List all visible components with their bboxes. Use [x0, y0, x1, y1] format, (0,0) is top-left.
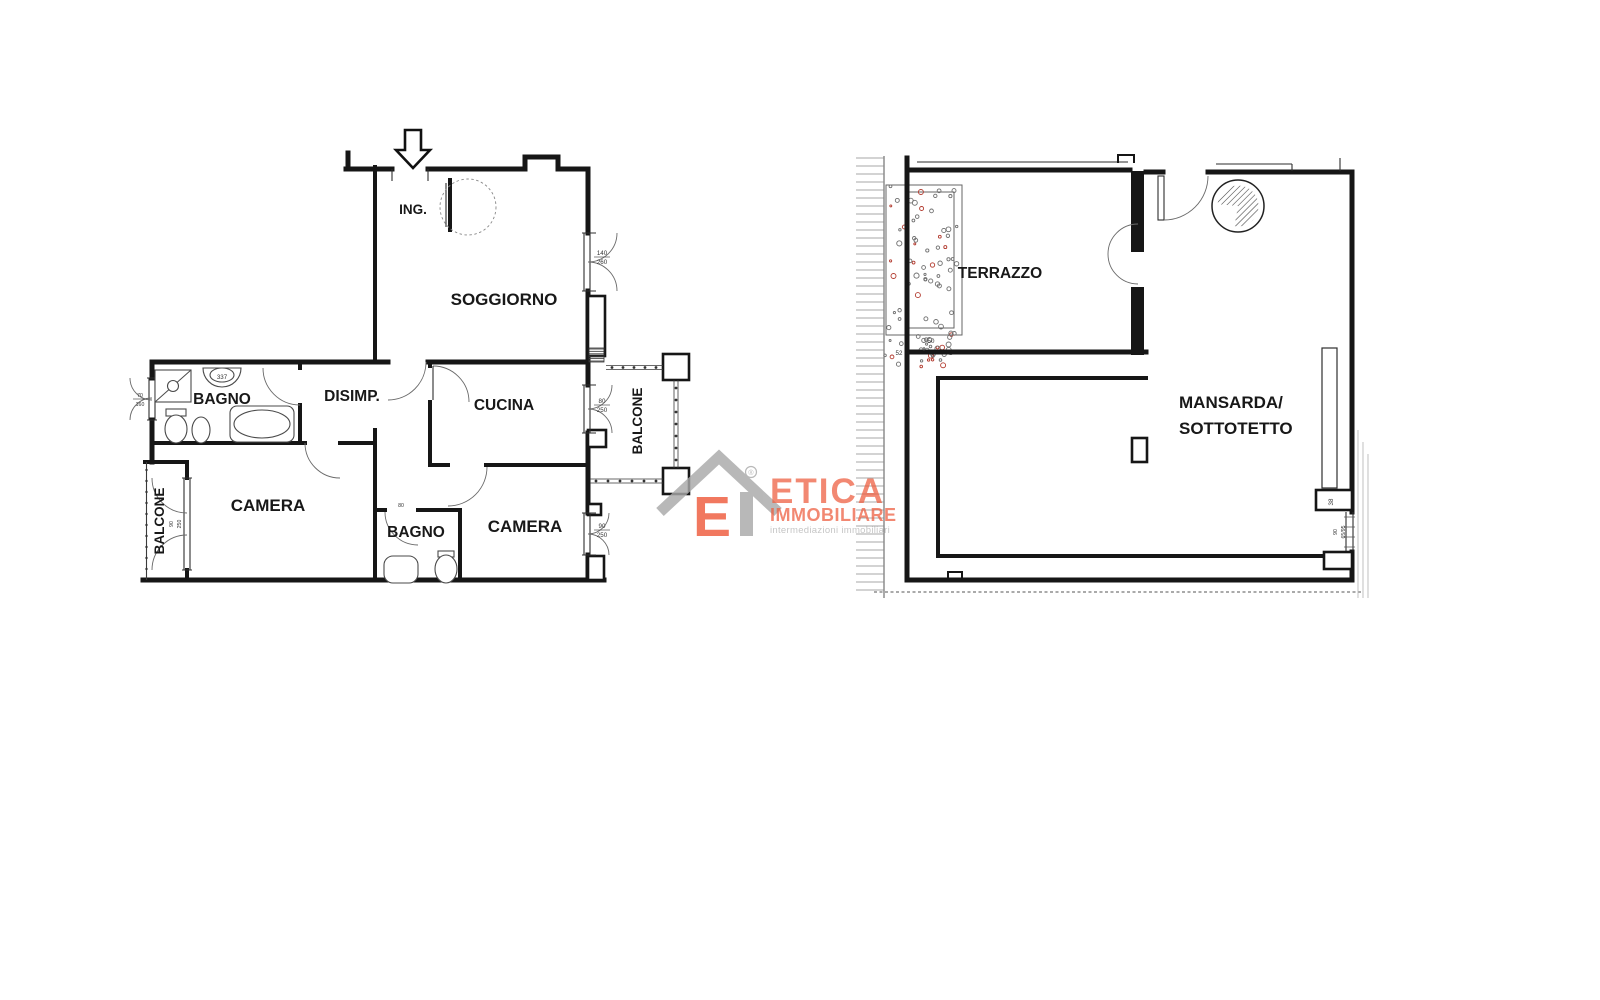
brand-suffix: IMMOBILIARE — [770, 505, 897, 525]
floor-plan-page: ING. SOGGIORNO BAGNO DISIMP. CUCINA CAME… — [0, 0, 1600, 1000]
balcony-left — [145, 462, 147, 580]
room-label-mansarda-2: SOTTOTETTO — [1179, 419, 1293, 438]
svg-text:70: 70 — [137, 393, 143, 399]
window-dim-cucina: 80 250 — [594, 398, 610, 414]
svg-text:E: E — [693, 485, 731, 549]
dim-niche: 38 — [1328, 498, 1335, 505]
left-floor-plan: ING. SOGGIORNO BAGNO DISIMP. CUCINA CAME… — [130, 130, 689, 583]
svg-text:65/95: 65/95 — [1341, 525, 1347, 538]
svg-text:250: 250 — [597, 532, 608, 539]
window-dim-bagno: 70 160 — [133, 393, 147, 408]
room-label-camera-right: CAMERA — [488, 517, 563, 536]
door-dim-bagno-bottom: 80 — [398, 503, 404, 509]
svg-text:90: 90 — [599, 523, 606, 530]
svg-text:260: 260 — [597, 259, 608, 266]
window-dim-camera-left: 90 250 — [169, 520, 183, 529]
dim-planter-width: 52 — [896, 350, 903, 357]
walls-right — [874, 155, 1362, 592]
registered-mark: ® — [748, 469, 754, 477]
svg-text:250: 250 — [177, 520, 183, 529]
bidet-icon — [192, 417, 210, 443]
entrance-arrow-icon — [396, 130, 430, 168]
chimney-flue-icon — [1212, 180, 1264, 232]
toilet-icon — [165, 409, 187, 443]
room-label-balcone-left: BALCONE — [152, 488, 167, 555]
sink-model-label: 337 — [217, 374, 228, 381]
dim-planter-gap: 8 — [923, 347, 926, 353]
room-label-ing: ING. — [399, 202, 427, 217]
room-label-camera-left: CAMERA — [231, 496, 306, 515]
attic-pillar — [1132, 438, 1147, 462]
room-label-bagno-bottom: BAGNO — [387, 524, 445, 541]
toilet-icon — [435, 551, 457, 583]
right-wall-details — [1316, 348, 1368, 598]
room-label-soggiorno: SOGGIORNO — [451, 290, 558, 309]
room-label-disimp: DISIMP. — [324, 388, 380, 405]
floor-plan-canvas: ING. SOGGIORNO BAGNO DISIMP. CUCINA CAME… — [0, 0, 1600, 1000]
window-dim-camera-right: 90 250 — [594, 523, 610, 539]
svg-text:140: 140 — [597, 250, 608, 257]
room-label-terrazzo: TERRAZZO — [958, 265, 1042, 282]
shower-tray-icon — [384, 556, 418, 583]
room-label-mansarda-1: MANSARDA/ — [1179, 393, 1283, 412]
brand-watermark: E ® ETICA IMMOBILIARE intermediazioni im… — [660, 457, 897, 549]
room-label-bagno-top: BAGNO — [193, 391, 251, 408]
svg-text:250: 250 — [597, 407, 608, 414]
svg-text:80: 80 — [599, 398, 606, 405]
planter-box — [884, 185, 962, 368]
shower-icon — [155, 370, 191, 402]
svg-text:90: 90 — [1333, 529, 1339, 535]
slope-hatch-lines — [1358, 430, 1368, 598]
dim-attic-window: 90 65/95 — [1333, 525, 1347, 538]
door-arcs-right — [1108, 176, 1208, 284]
svg-text:160: 160 — [136, 402, 145, 408]
brand-tagline: intermediazioni immobiliari — [770, 525, 890, 536]
svg-text:90: 90 — [169, 521, 175, 527]
room-label-cucina: CUCINA — [474, 397, 534, 414]
bathtub-icon — [230, 406, 294, 442]
right-floor-plan: TERRAZZO MANSARDA/ SOTTOTETTO 50 8 52 38… — [856, 155, 1368, 598]
dim-planter-depth: 50 — [928, 338, 935, 345]
room-label-balcone-right: BALCONE — [630, 388, 645, 455]
vegetation-scatter — [884, 185, 959, 368]
